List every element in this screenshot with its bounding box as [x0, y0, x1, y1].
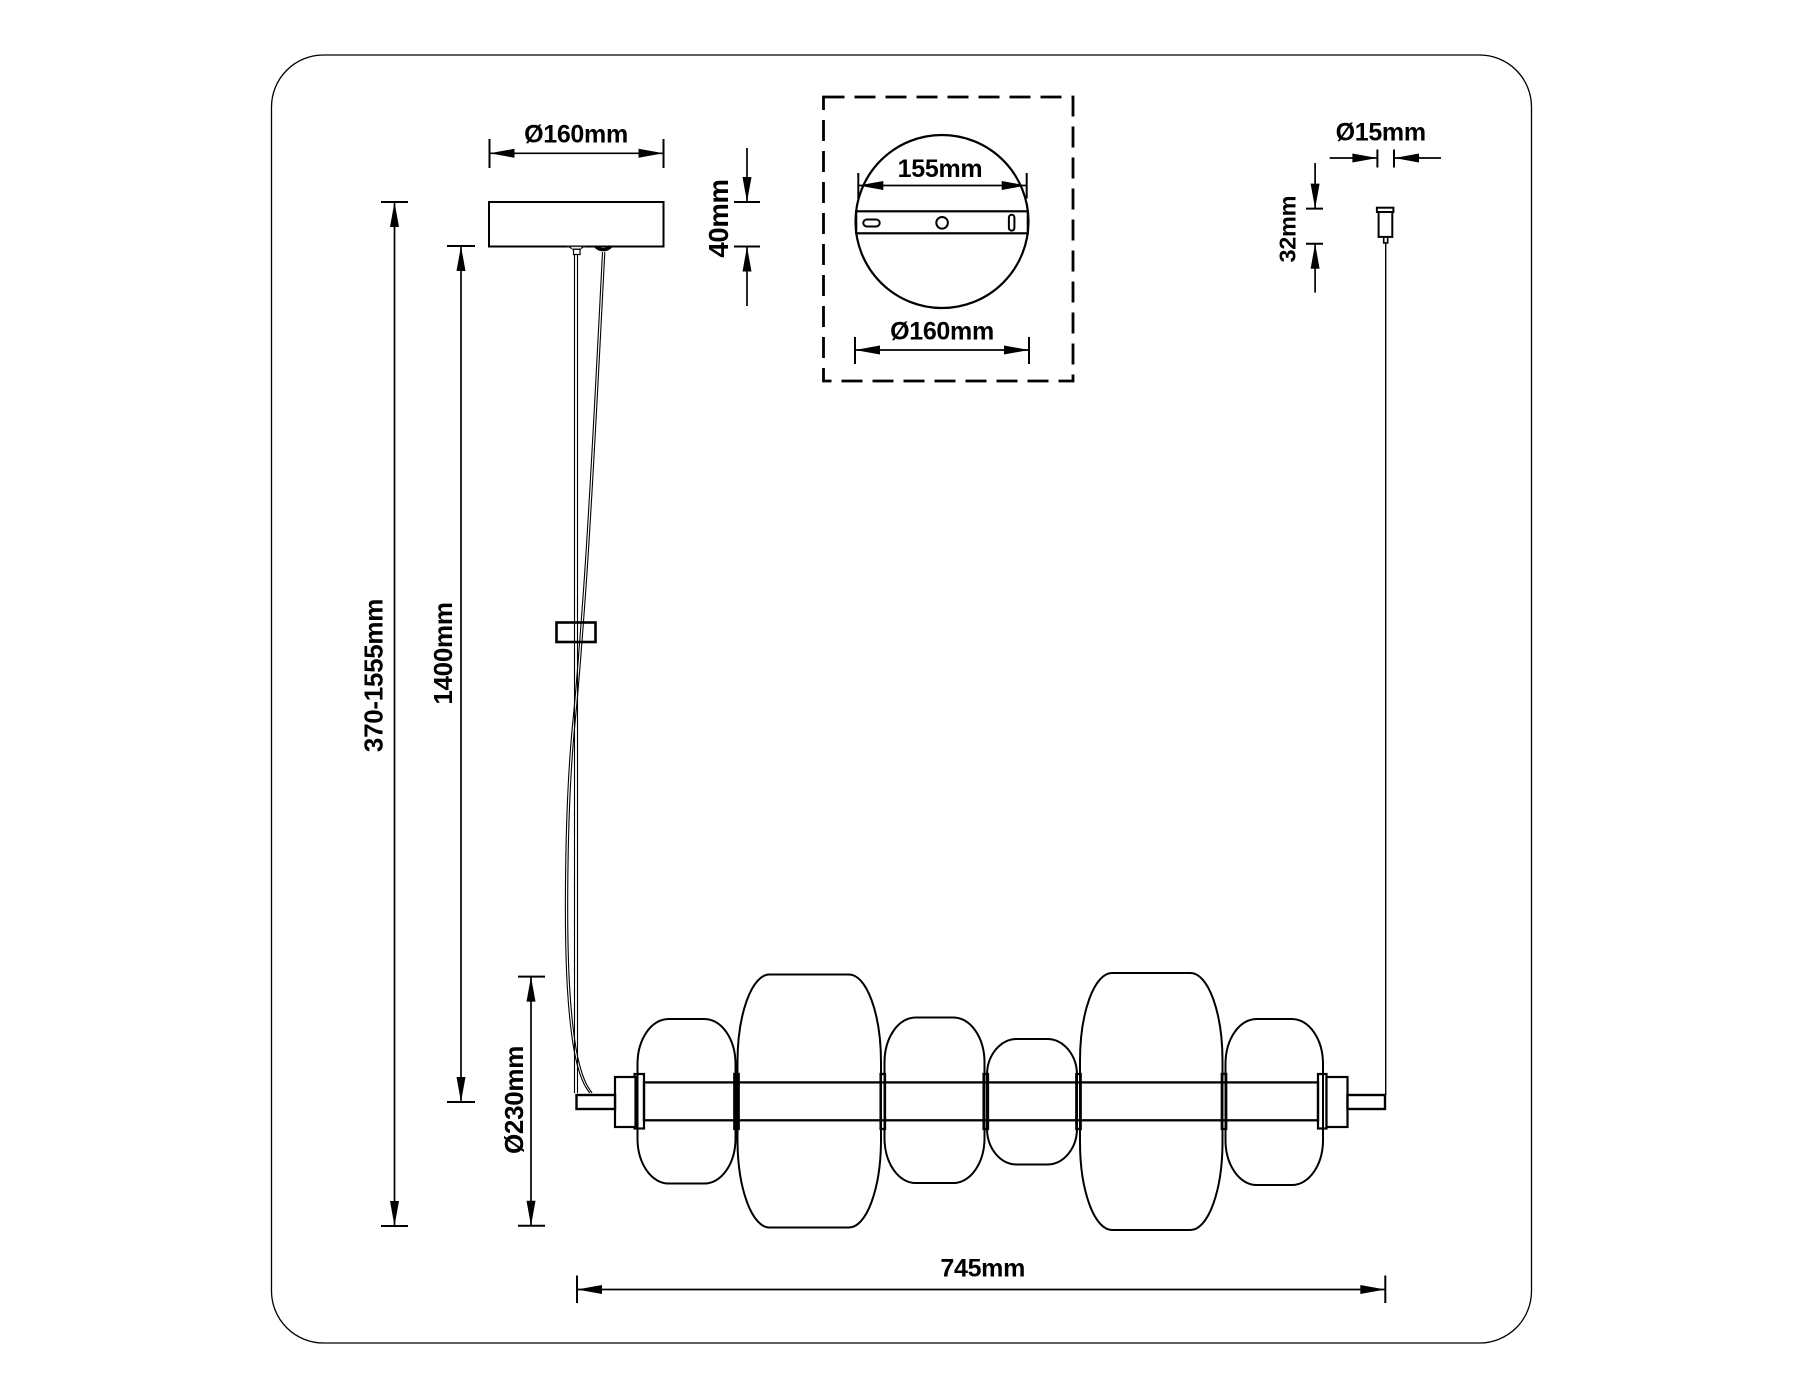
- svg-text:370-1555mm: 370-1555mm: [359, 599, 389, 752]
- svg-text:Ø230mm: Ø230mm: [499, 1046, 529, 1154]
- svg-text:Ø160mm: Ø160mm: [890, 318, 994, 346]
- svg-text:155mm: 155mm: [898, 155, 983, 183]
- svg-text:32mm: 32mm: [1275, 196, 1301, 263]
- svg-text:745mm: 745mm: [940, 1255, 1025, 1283]
- svg-text:Ø15mm: Ø15mm: [1336, 118, 1426, 146]
- svg-text:Ø160mm: Ø160mm: [524, 121, 628, 149]
- svg-text:1400mm: 1400mm: [428, 602, 458, 704]
- svg-text:40mm: 40mm: [703, 179, 734, 257]
